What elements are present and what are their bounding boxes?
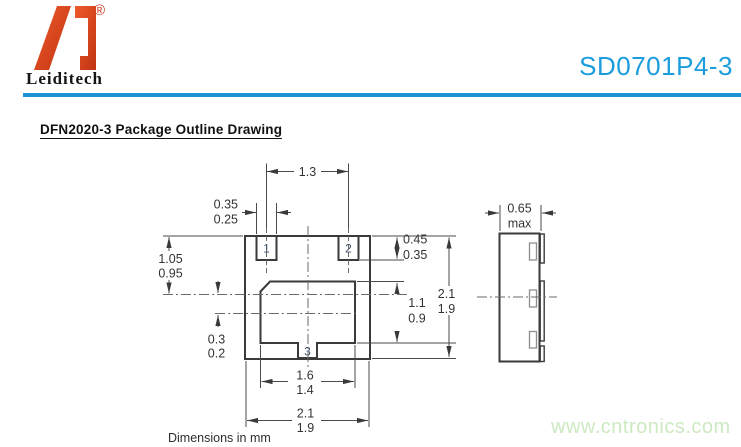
- svg-text:1.6: 1.6: [296, 369, 313, 383]
- dim-thickness: 0.65 max: [485, 202, 556, 232]
- dim-pad-width: 0.35 0.25: [214, 198, 291, 235]
- watermark: www.cntronics.com: [551, 416, 731, 439]
- svg-text:0.95: 0.95: [158, 267, 182, 281]
- svg-text:0.25: 0.25: [214, 213, 238, 227]
- dim-top-to-centerline: 1.05 0.95: [158, 236, 243, 294]
- svg-text:1.1: 1.1: [408, 296, 425, 310]
- datasheet-page: ® Leiditech SD0701P4-3 DFN2020-3 Package…: [0, 0, 741, 447]
- top-view: 1 2 3 1.3 0.35 0.25: [158, 164, 456, 436]
- dimensions-note: Dimensions in mm: [168, 431, 271, 445]
- svg-text:0.35: 0.35: [403, 248, 427, 262]
- pad-1-label: 1: [263, 242, 270, 256]
- side-terminal-middle: [540, 281, 544, 341]
- svg-text:0.2: 0.2: [208, 347, 225, 361]
- svg-text:0.65: 0.65: [507, 202, 531, 216]
- svg-text:0.45: 0.45: [403, 233, 427, 247]
- dim-pad-pitch: 1.3: [267, 164, 349, 229]
- svg-text:0.35: 0.35: [214, 198, 238, 212]
- svg-text:1.9: 1.9: [297, 421, 314, 435]
- dim-centerline-offset: 0.3 0.2: [208, 281, 225, 361]
- svg-text:max: max: [508, 217, 532, 231]
- side-pad-1: [530, 243, 537, 260]
- svg-text:1.4: 1.4: [296, 383, 313, 397]
- side-pad-2: [530, 290, 537, 307]
- package-outline-drawing: 1 2 3 1.3 0.35 0.25: [0, 0, 741, 447]
- side-view: 0.65 max: [477, 202, 557, 362]
- side-pad-3: [530, 332, 537, 349]
- svg-text:2.1: 2.1: [438, 287, 455, 301]
- pad-2-label: 2: [345, 242, 352, 256]
- pad-3-label: 3: [304, 345, 311, 359]
- svg-text:1.9: 1.9: [438, 302, 455, 316]
- svg-text:2.1: 2.1: [297, 407, 314, 421]
- svg-text:1.3: 1.3: [299, 165, 316, 179]
- svg-text:0.9: 0.9: [408, 312, 425, 326]
- side-terminal-top: [540, 234, 544, 263]
- side-terminal-bottom: [540, 346, 544, 362]
- svg-text:1.05: 1.05: [158, 252, 182, 266]
- svg-text:0.3: 0.3: [208, 333, 225, 347]
